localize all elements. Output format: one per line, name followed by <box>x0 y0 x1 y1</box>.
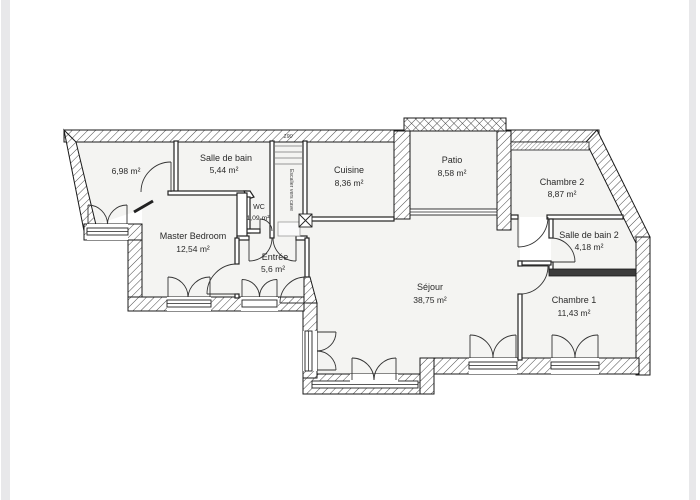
room-area-cuisine: 8,36 m² <box>335 178 364 188</box>
room-area-chambre-2: 8,87 m² <box>548 189 577 199</box>
window-chambre1 <box>551 358 599 374</box>
wall-sdb2-bottom <box>549 269 636 276</box>
page-edge-band-right <box>689 0 696 500</box>
floor-plan: 6,98 m² Salle de bain 5,44 m² Cuisine 8,… <box>0 0 700 500</box>
wall-top-left <box>64 130 404 142</box>
room-area-chambre-1: 11,43 m² <box>558 308 591 318</box>
wall-cuisine-patio <box>394 131 410 219</box>
room-name-chambre-1: Chambre 1 <box>552 295 597 305</box>
room-area-salle-de-bain-2: 4,18 m² <box>575 242 604 252</box>
window-sejour-bottom-right <box>469 358 517 374</box>
room-area-unnamed-left: 6,98 m² <box>112 166 141 176</box>
window-master <box>167 297 211 311</box>
room-area-wc: 1,09 m² <box>246 215 270 222</box>
duct-symbol <box>299 214 312 227</box>
room-name-salle-de-bain-2: Salle de bain 2 <box>559 230 619 240</box>
room-name-patio: Patio <box>442 155 463 165</box>
room-area-sejour: 38,75 m² <box>413 295 447 305</box>
patio-top-band <box>404 118 506 131</box>
wall-right <box>636 237 650 375</box>
screenshot-canvas: 6,98 m² Salle de bain 5,44 m² Cuisine 8,… <box>0 0 700 500</box>
window-patio-sejour <box>410 209 497 215</box>
room-name-salle-de-bain: Salle de bain <box>200 153 252 163</box>
dimension-label: 190 <box>283 134 293 140</box>
room-area-master-bedroom: 12,54 m² <box>176 244 210 254</box>
window-unnamed-left <box>87 224 128 240</box>
page-edge-band-left <box>1 0 10 500</box>
room-name-master-bedroom: Master Bedroom <box>160 231 227 241</box>
stairs-label: Escalier vers cave <box>288 169 294 211</box>
window-entree-door-sill <box>241 297 278 311</box>
window-sejour-left <box>303 331 317 371</box>
wall-bottom-right <box>434 358 639 374</box>
room-area-salle-de-bain: 5,44 m² <box>210 165 239 175</box>
chambre2-window-strip <box>511 142 589 150</box>
room-name-cuisine: Cuisine <box>334 165 364 175</box>
room-area-entree: 5,6 m² <box>261 264 285 274</box>
room-name-entree: Entrée <box>262 252 289 262</box>
room-area-patio: 8,58 m² <box>438 168 467 178</box>
room-name-sejour: Séjour <box>417 282 443 292</box>
stair-landing <box>278 222 300 236</box>
room-name-wc: WC <box>253 204 265 211</box>
room-name-chambre-2: Chambre 2 <box>540 177 585 187</box>
wall-bottom-step <box>420 358 434 394</box>
wall-top-right <box>506 130 599 142</box>
wall-patio-chambre2 <box>497 131 511 230</box>
